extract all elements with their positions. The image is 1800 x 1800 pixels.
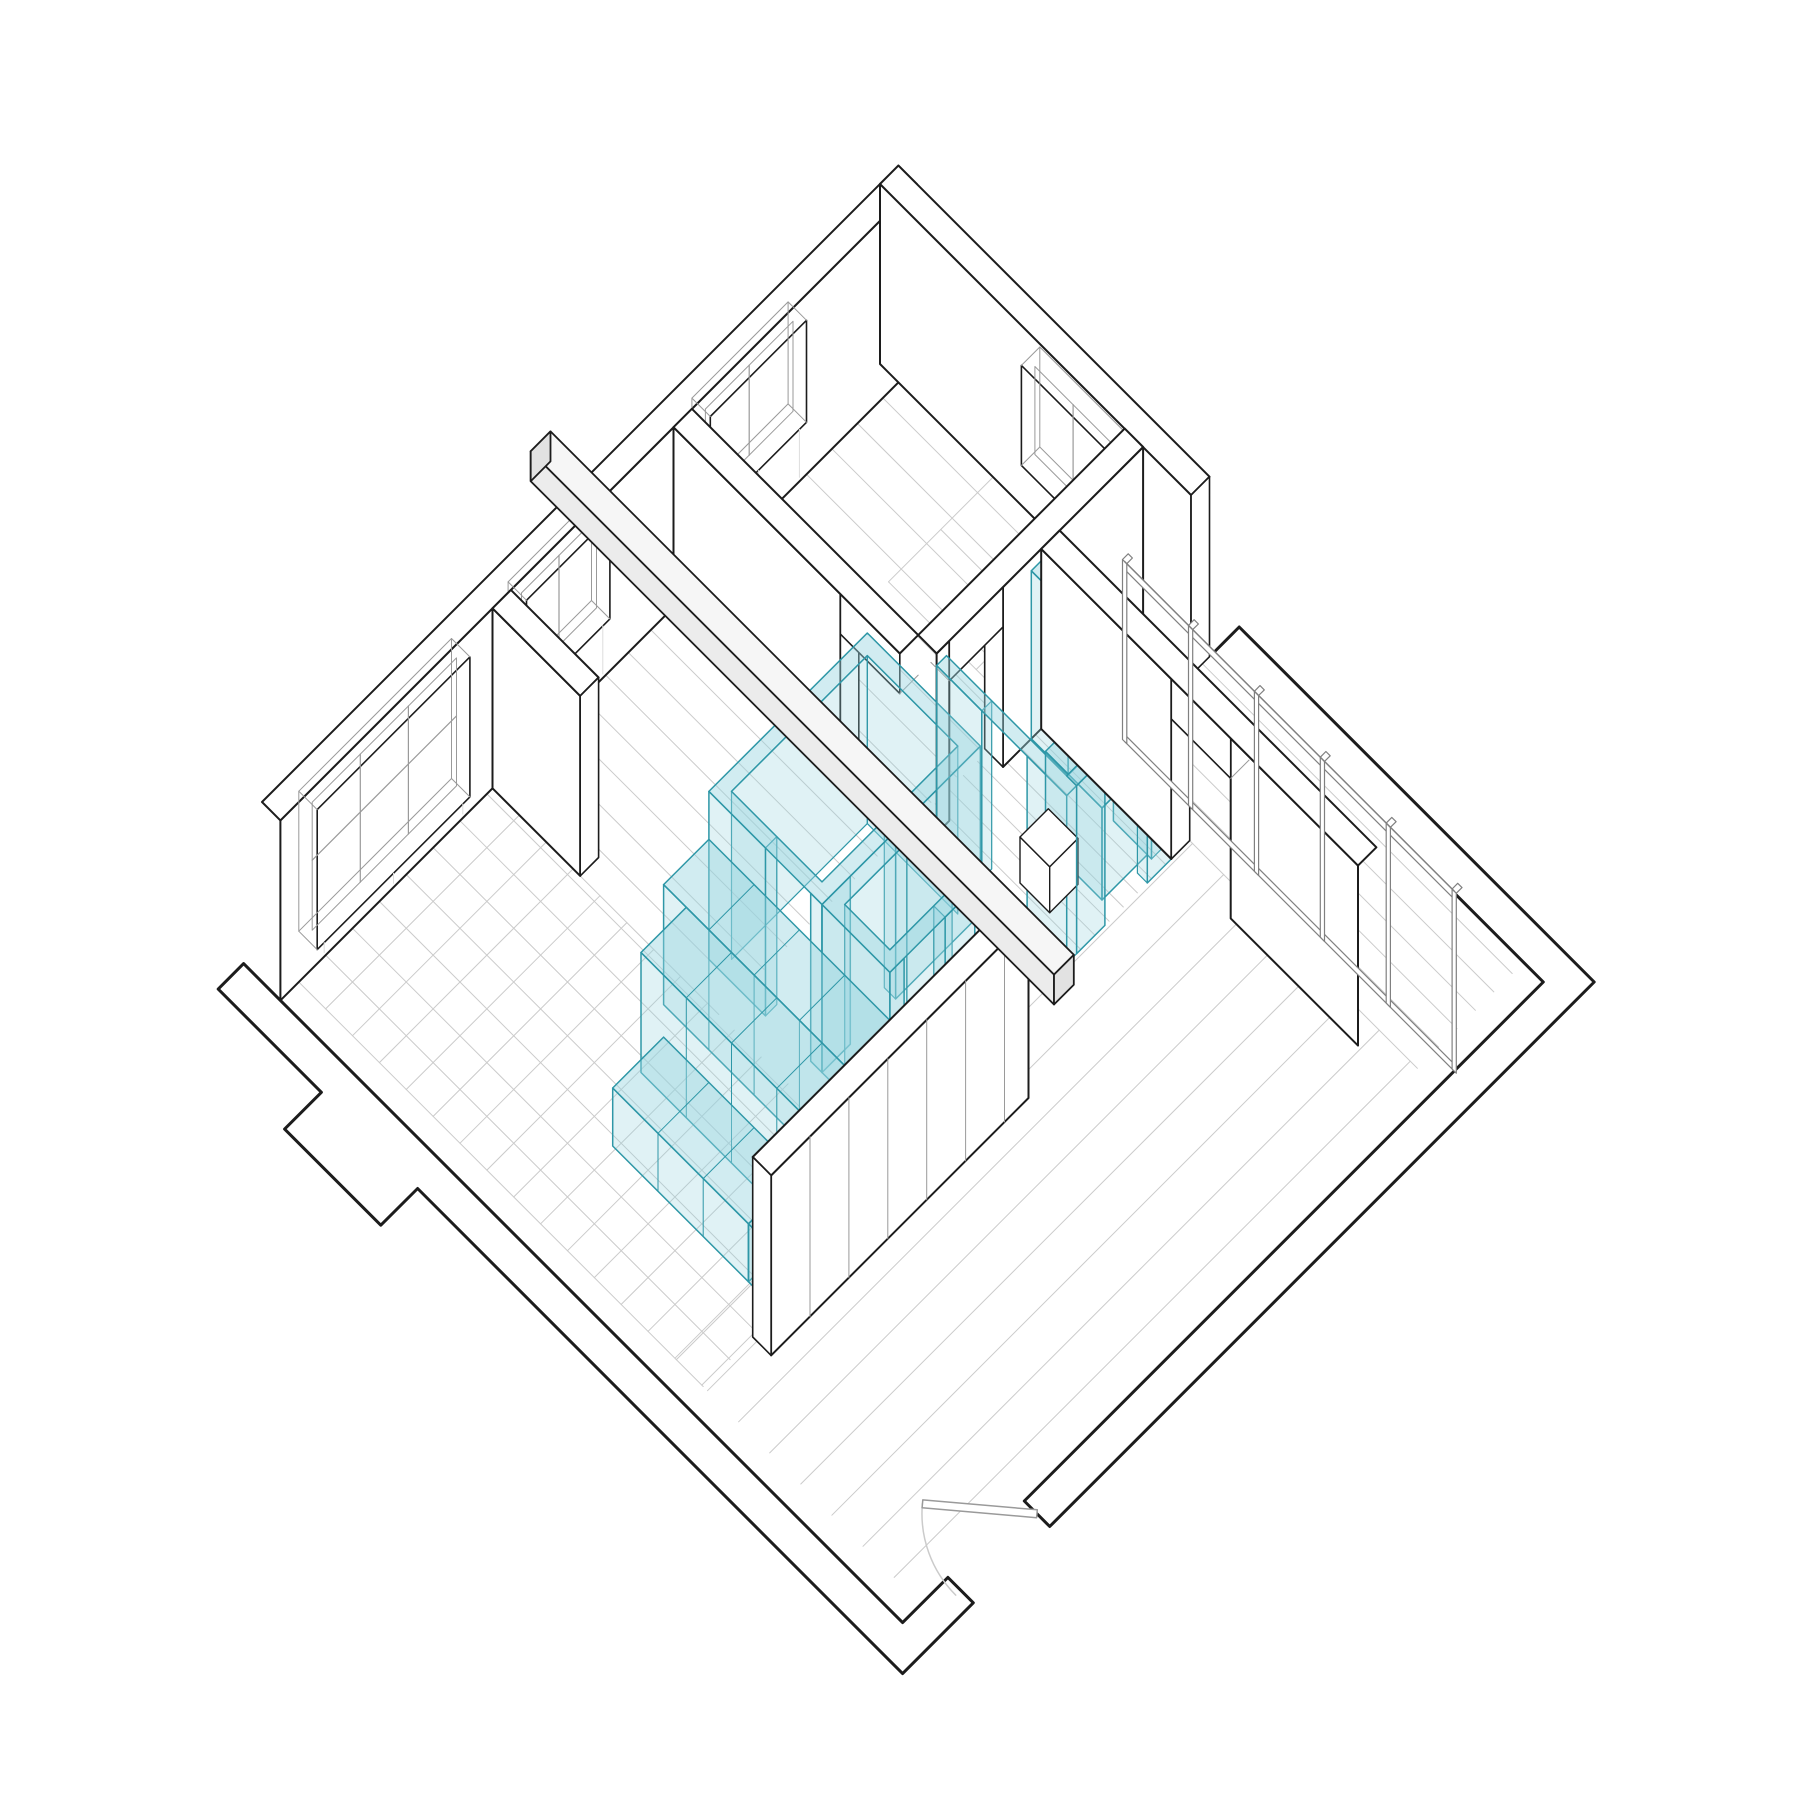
axonometric-floor-plan-svg: [0, 0, 1800, 1800]
entry-door-swing: [922, 1500, 1037, 1595]
axonometric-drawing: [0, 0, 1800, 1800]
